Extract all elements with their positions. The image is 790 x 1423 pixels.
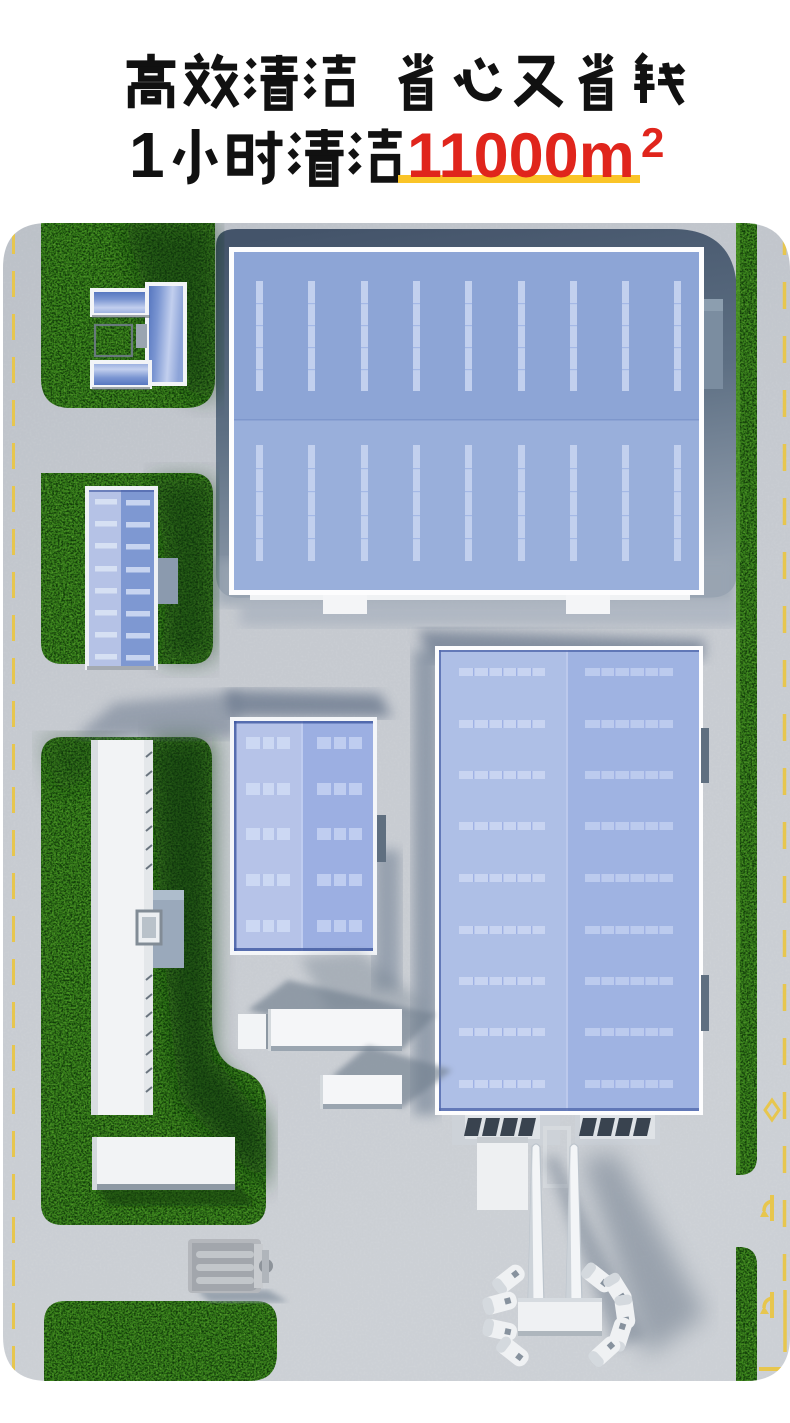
svg-text:2: 2: [641, 119, 664, 166]
svg-text:1: 1: [129, 119, 165, 191]
svg-text:11000m: 11000m: [407, 121, 635, 191]
